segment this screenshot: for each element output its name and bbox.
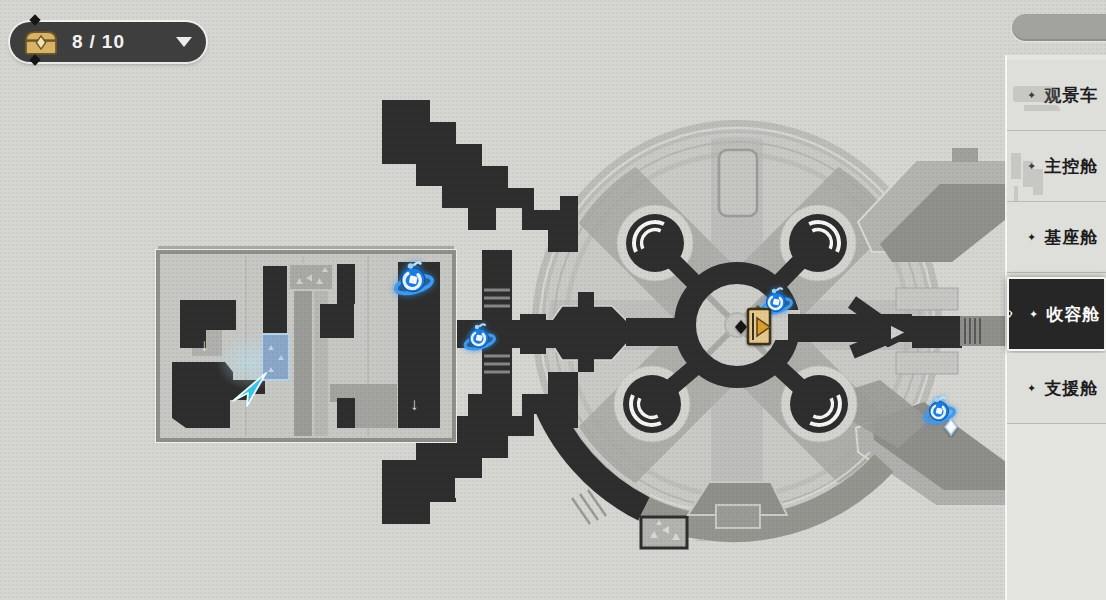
climbable-box-room: [289, 264, 333, 290]
zone-label: 主控舱: [1044, 155, 1098, 178]
upper-right-plates: [858, 148, 1010, 262]
zone-label: 观景车: [1044, 84, 1098, 107]
caret-down-icon[interactable]: [176, 37, 192, 47]
zone-label: 基座舱: [1044, 226, 1098, 249]
treasure-counter-pill[interactable]: 8/10: [10, 22, 206, 62]
right-arrow-icon: →: [692, 529, 708, 546]
sidebar-item-storage-zone[interactable]: ≫ ✦ 收容舱: [1007, 277, 1106, 351]
knob-sw: [623, 375, 681, 433]
star-icon: ✦: [1027, 160, 1036, 173]
selected-chevron-icon: ≫: [1007, 301, 1012, 325]
star-icon: ✦: [1027, 89, 1036, 102]
corridor-notch: [455, 478, 491, 498]
knob-ne: [789, 214, 847, 272]
zone-label: 收容舱: [1046, 303, 1100, 326]
star-icon: ✦: [1027, 231, 1036, 244]
zone-ghost-illustration: [1011, 153, 1021, 179]
star-icon: ✦: [1029, 308, 1038, 321]
upper-left-corridor: [382, 100, 578, 252]
map-canvas[interactable]: →: [0, 0, 1106, 600]
knob-nw: [626, 214, 684, 272]
down-arrow-icon: ↓: [410, 395, 419, 414]
star-icon: ✦: [1027, 382, 1036, 395]
treasure-count: 8/10: [69, 31, 128, 53]
knob-se: [790, 375, 848, 433]
sidebar-item-master-control[interactable]: ✦ 主控舱: [1007, 131, 1106, 202]
hub-top-slot: [719, 150, 757, 216]
down-arrow-icon: ↓: [200, 336, 209, 355]
sidebar-item-supply-zone[interactable]: ✦ 支援舱: [1007, 353, 1106, 424]
zone-sidebar: ✦ 观景车 ✦ 主控舱 ✦ 基座舱 ≫ ✦ 收容舱 ✦ 支援舱: [1007, 55, 1106, 600]
sidebar-item-parlor-car[interactable]: ✦ 观景车: [1007, 60, 1106, 131]
zone-label: 支援舱: [1044, 377, 1098, 400]
sidebar-item-base-zone[interactable]: ✦ 基座舱: [1007, 202, 1106, 273]
climbable-box-bottom: [641, 517, 687, 548]
treasure-chest-icon: [24, 28, 58, 57]
collapsed-counter-pill[interactable]: [1012, 14, 1106, 41]
